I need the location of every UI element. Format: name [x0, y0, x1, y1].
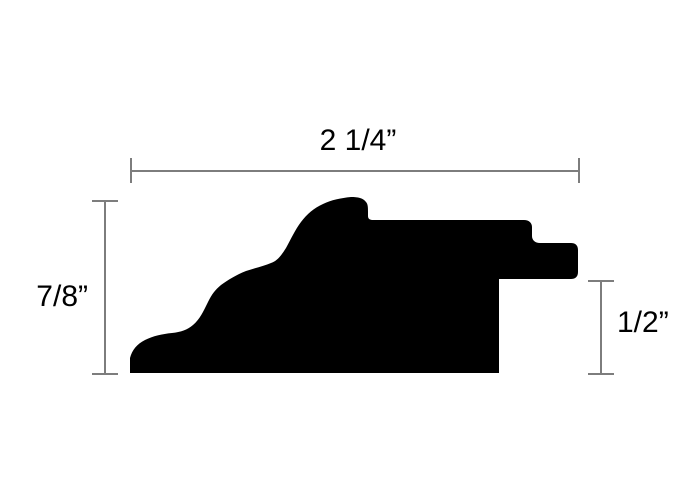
right-depth-dimension-label: 1/2”: [617, 306, 669, 339]
right-depth-dimension: [588, 281, 614, 374]
diagram-canvas: 2 1/4” 7/8” 1/2”: [0, 0, 700, 500]
width-dimension: [131, 158, 579, 183]
moulding-profile-shape: [130, 197, 578, 373]
right-depth-dimension-label-group: 1/2”: [617, 306, 669, 339]
moulding-profile-diagram: 2 1/4” 7/8” 1/2”: [0, 0, 700, 500]
left-height-dimension-label: 7/8”: [36, 280, 88, 313]
left-height-dimension: [92, 201, 118, 374]
width-dimension-label-group: 2 1/4”: [320, 124, 397, 157]
width-dimension-label: 2 1/4”: [320, 124, 397, 157]
left-height-dimension-label-group: 7/8”: [36, 280, 88, 313]
